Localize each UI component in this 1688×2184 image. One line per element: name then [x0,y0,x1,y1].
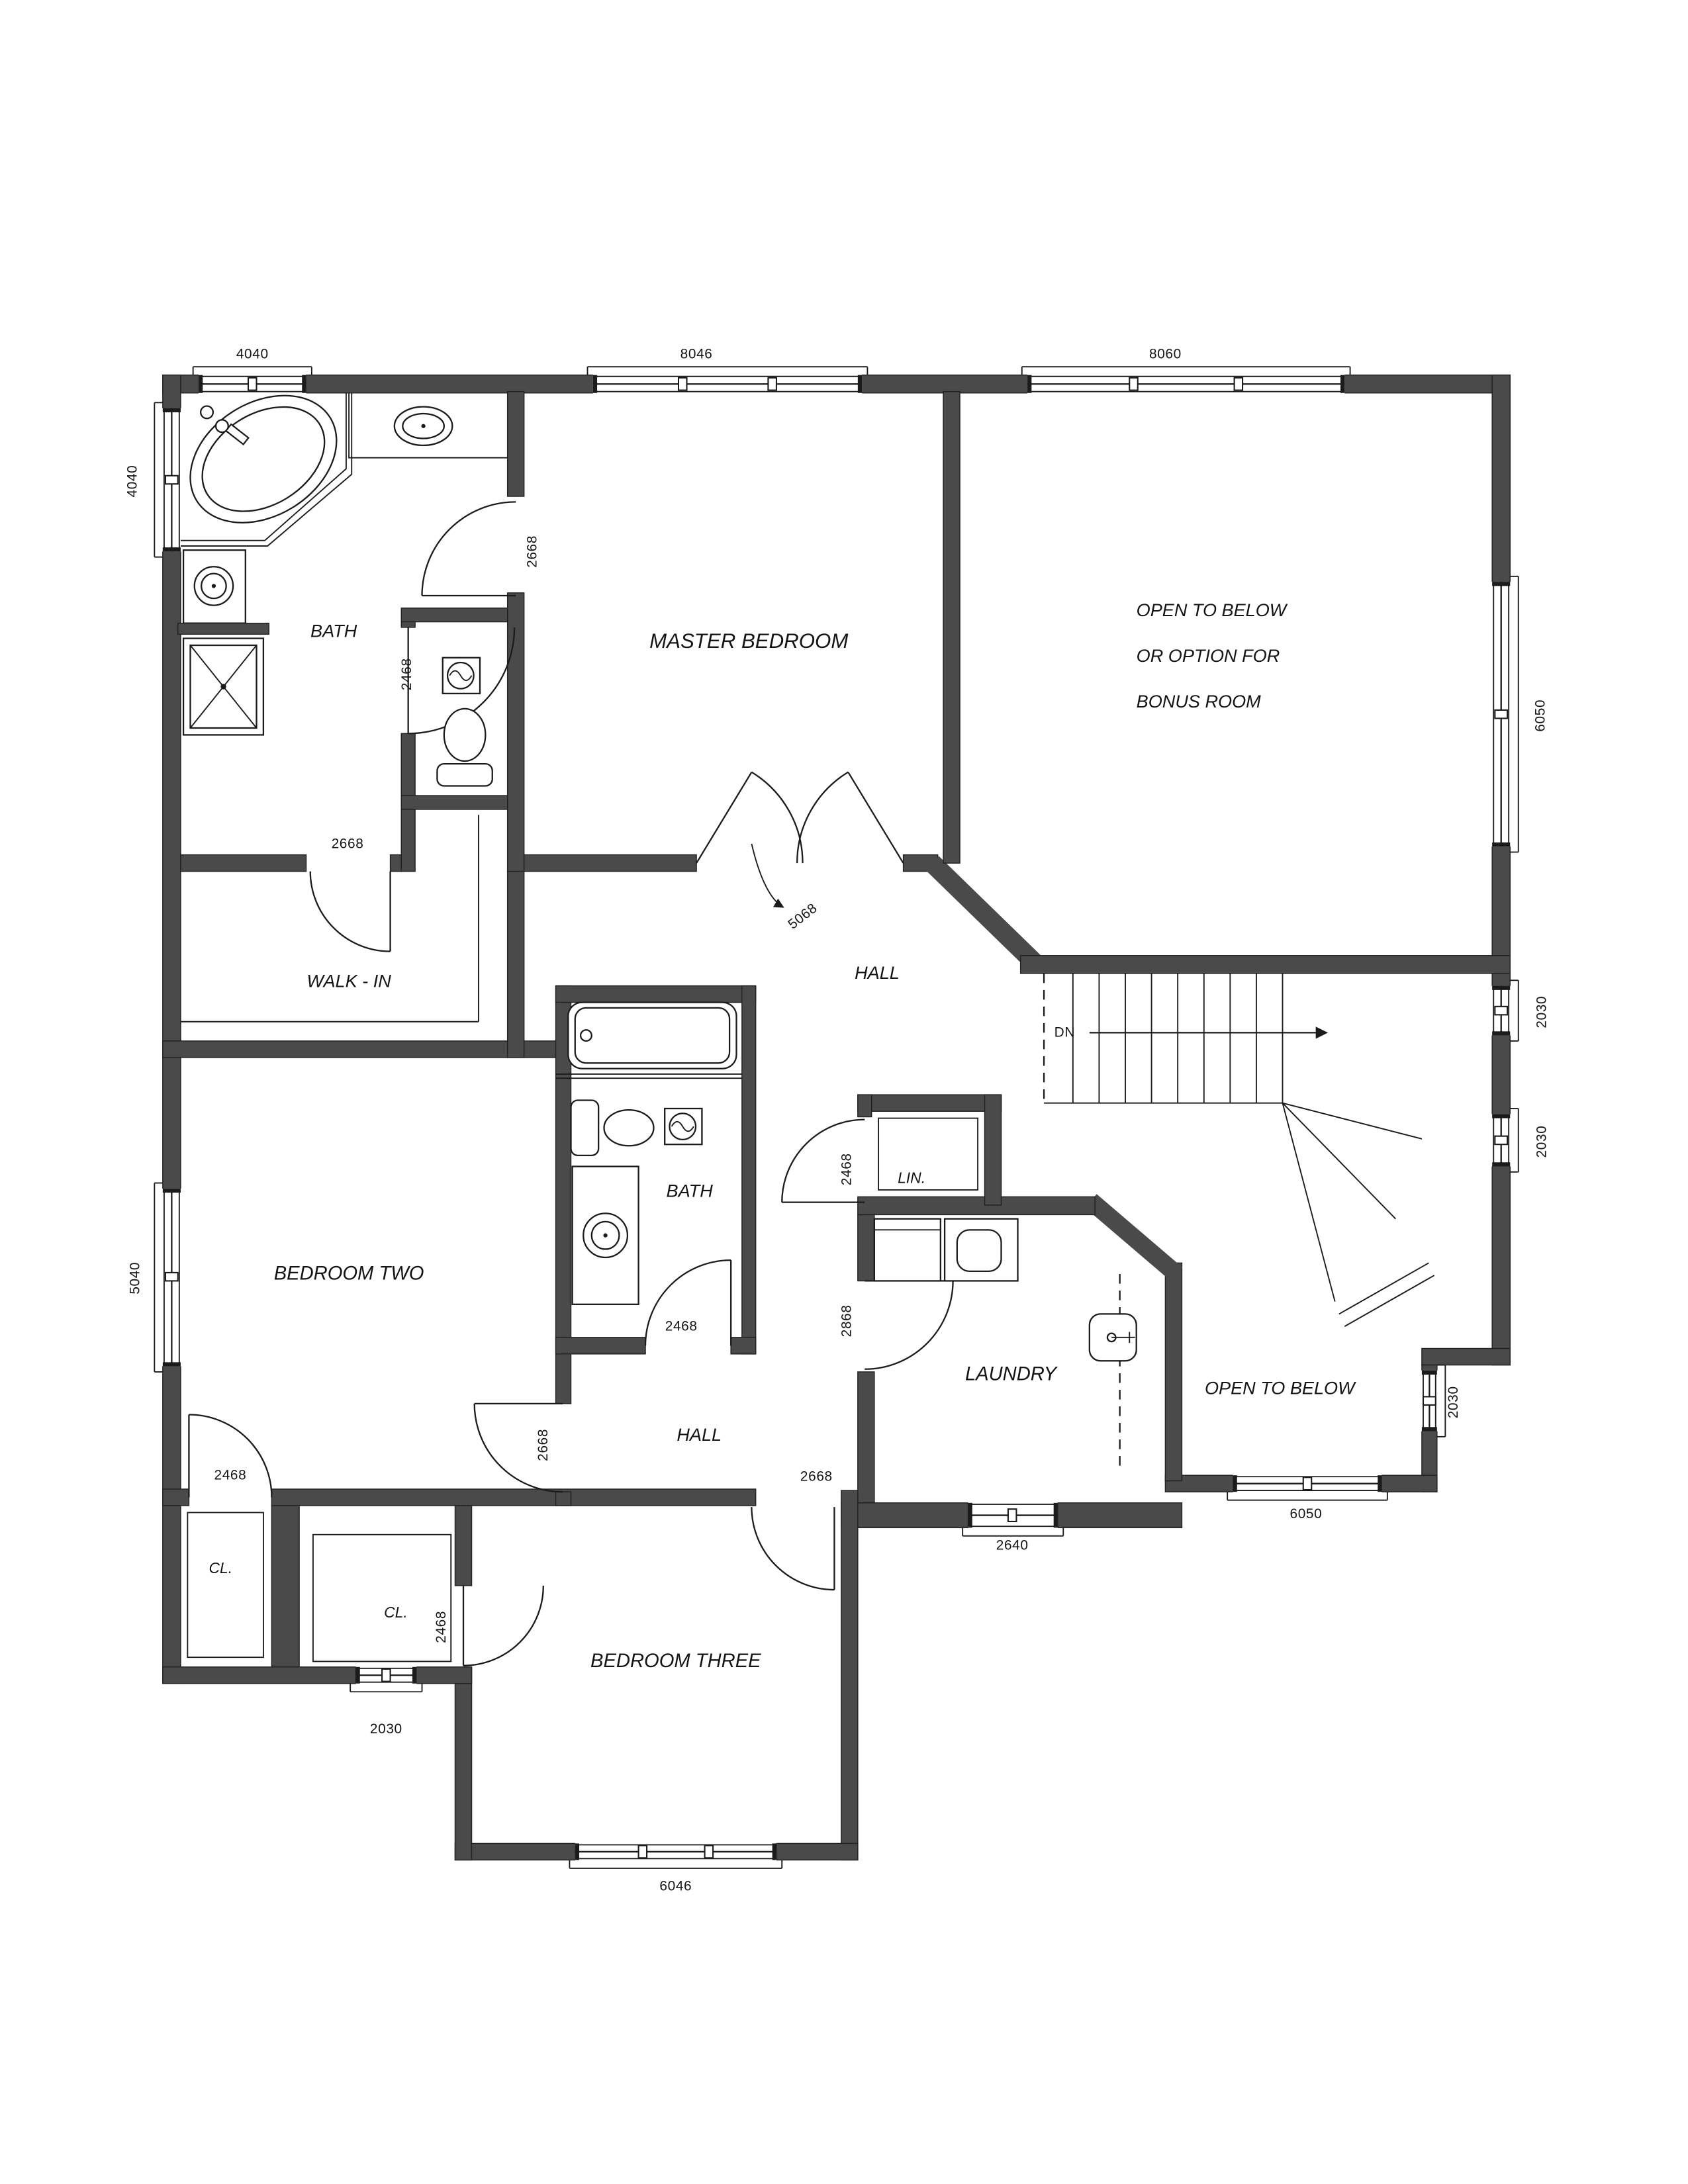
master-bath-oval-sink [395,407,453,445]
master-bath-shower [183,639,263,735]
windows [154,367,1518,1868]
window-top-4040 [193,367,312,394]
door-label-bath-two: 2468 [665,1318,698,1334]
label-hall-lower: HALL [677,1424,722,1445]
window-bottom-6046 [569,1843,782,1868]
wc-exhaust-fan [443,658,480,694]
door-label-master-bedroom: 5068 [785,900,820,932]
door-walk-in [310,872,391,952]
dim-right-2030-lower: 2030 [1446,1386,1461,1418]
label-bonus-line2: OR OPTION FOR [1137,645,1280,666]
door-label-walk-in: 2668 [332,836,364,851]
label-bedroom-three: BEDROOM THREE [590,1651,761,1672]
wc-toilet [437,709,492,786]
dim-top-8046: 8046 [680,347,713,362]
dim-top-8060: 8060 [1149,347,1182,362]
door-label-closet-left: 2468 [214,1467,246,1482]
dim-bottom-6046: 6046 [659,1878,692,1893]
window-bottom-2030 [350,1666,422,1692]
label-bedroom-two: BEDROOM TWO [274,1263,424,1284]
label-hall-upper: HALL [855,962,900,983]
door-bedroom-three-closet [463,1586,543,1666]
label-walk-in: WALK - IN [306,971,391,991]
closet-left-shelf [187,1512,263,1657]
bath-two-toilet [571,1101,654,1156]
dim-bottom-6050: 6050 [1289,1506,1322,1522]
door-label-bedroom-three-closet: 2468 [434,1611,449,1643]
door-bedroom-three [751,1507,834,1590]
dim-top-4040: 4040 [236,347,269,362]
label-bonus-line3: BONUS ROOM [1137,691,1261,711]
window-bottom-2640 [962,1502,1063,1536]
walls [163,375,1510,1860]
label-closet-left: CL. [209,1559,233,1576]
door-master-bath [422,502,516,596]
master-bath-tub [167,369,360,549]
label-master-bath: BATH [310,621,357,641]
label-stairs-dn: DN [1055,1025,1075,1040]
door-laundry [865,1281,953,1369]
label-open-to-below: OPEN TO BELOW [1205,1377,1356,1398]
fixtures [167,369,1137,1661]
label-laundry: LAUNDRY [965,1363,1058,1385]
dim-right-2030-upper: 2030 [1534,996,1549,1028]
door-master-bedroom-double [696,772,904,864]
door-label-laundry: 2868 [839,1304,854,1337]
label-linen: LIN. [898,1169,925,1187]
dim-right-2030-mid: 2030 [1534,1126,1549,1158]
laundry-washer [874,1219,941,1281]
window-right-2030b [1491,1109,1519,1172]
window-right-2030a [1491,980,1519,1041]
window-top-8046 [588,367,868,394]
window-left-4040 [154,402,181,557]
door-label-master-bath: 2668 [524,535,539,568]
bath-two-exhaust-fan [665,1109,702,1144]
window-top-8060 [1022,367,1350,394]
window-left-5040 [154,1183,181,1372]
closet-bedroom-three-shelf [313,1535,451,1662]
door-label-bedroom-three: 2668 [800,1469,833,1484]
laundry-sink [1090,1314,1137,1361]
label-closet-bedroom-three: CL. [384,1604,408,1621]
bath-two-tub [556,1003,742,1079]
door-closet-left [189,1415,271,1498]
stairs [751,844,1434,1326]
label-bonus-line1: OPEN TO BELOW [1137,600,1288,620]
door-label-wc: 2468 [399,658,414,690]
label-master-bedroom: MASTER BEDROOM [649,629,849,653]
shower-drain [220,684,226,689]
dim-left-5040: 5040 [127,1262,142,1295]
dim-left-4040: 4040 [124,465,140,498]
window-bottom-6050 [1227,1475,1387,1500]
floor-plan: MASTER BEDROOM BATH WALK - IN HALL BEDRO… [0,0,1688,2184]
window-right-6050 [1491,576,1519,852]
dim-right-6050: 6050 [1532,700,1548,732]
door-label-bedroom-two: 2668 [536,1429,551,1461]
label-bath-two: BATH [667,1180,714,1201]
bath-two-vanity [573,1167,639,1304]
dim-bottom-2640: 2640 [996,1538,1029,1553]
window-right-2030c [1421,1365,1445,1437]
door-label-linen: 2468 [839,1153,854,1185]
dim-bottom-2030: 2030 [370,1721,402,1737]
tub-drain [581,1030,592,1041]
master-bath-vanity [183,550,246,623]
laundry-dryer [945,1219,1017,1281]
door-5068-leader-arrow [751,844,783,907]
linen-shelf [878,1118,978,1190]
tub-faucet-knob [201,406,213,419]
